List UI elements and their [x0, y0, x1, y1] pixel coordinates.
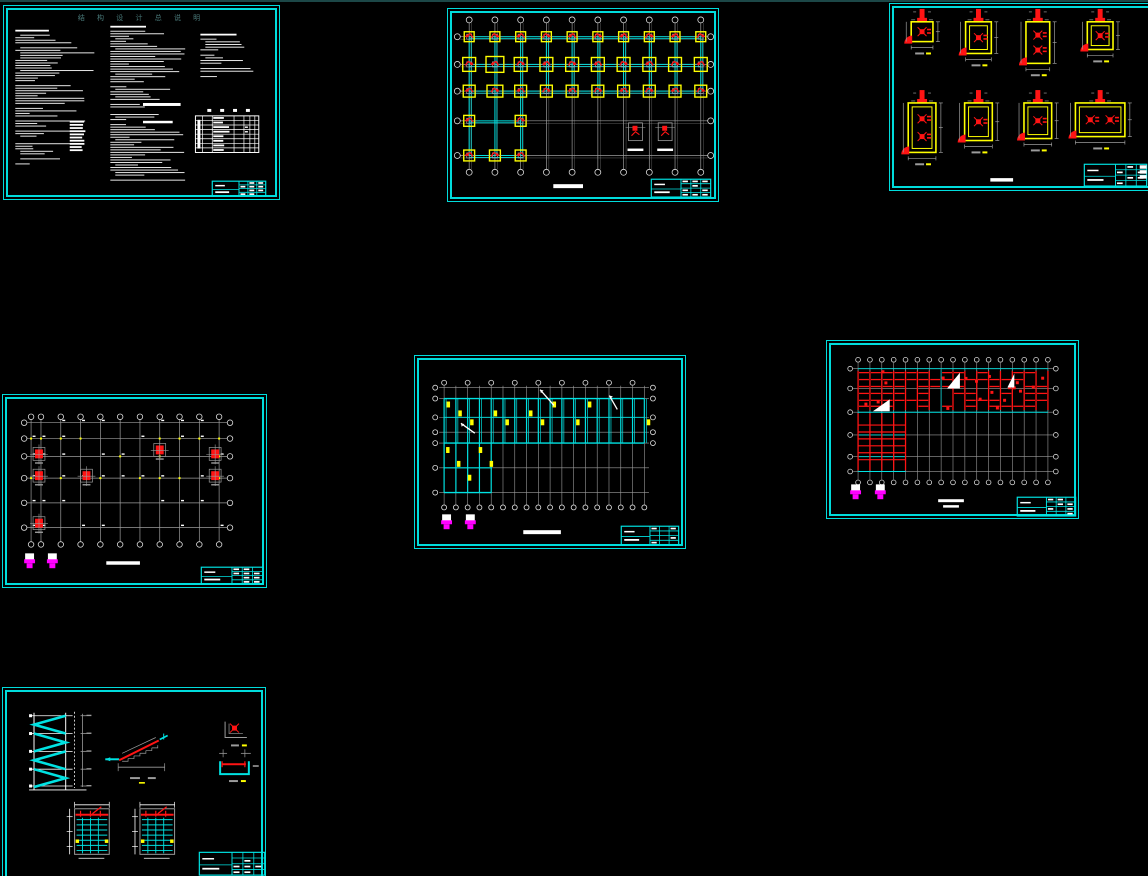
sheet-general-notes[interactable]: 结 构 设 计 总 说 明: [3, 5, 280, 200]
footing-details-drawing: [890, 4, 1148, 190]
floor-framing-drawing: [415, 356, 685, 548]
beam-reinforcement-drawing: [827, 341, 1078, 518]
sheet-footing-details[interactable]: [889, 3, 1148, 191]
column-layout-drawing: [3, 395, 266, 587]
sheet-foundation-plan[interactable]: [447, 8, 719, 202]
sheet-beam-reinforcement-plan[interactable]: [826, 340, 1079, 519]
sheet-stair-details[interactable]: [2, 687, 266, 876]
general-notes-drawing: [4, 6, 279, 199]
window-edge-strip: [0, 0, 1148, 2]
sheet-floor-framing-plan[interactable]: [414, 355, 686, 549]
stair-details-drawing: [3, 688, 265, 876]
cad-canvas: 结 构 设 计 总 说 明: [0, 0, 1148, 876]
foundation-plan-drawing: [448, 9, 718, 201]
sheet-column-layout-plan[interactable]: [2, 394, 267, 588]
sheet-title-text: 结 构 设 计 总 说 明: [4, 13, 279, 23]
